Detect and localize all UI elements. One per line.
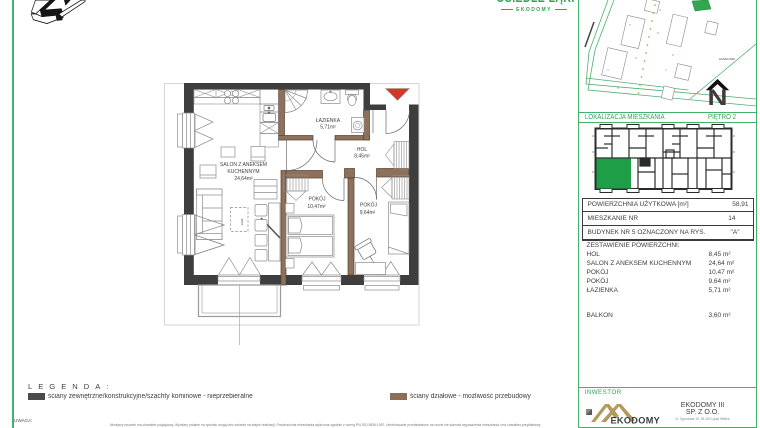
svg-text:HOL: HOL	[357, 147, 368, 153]
svg-text:5,71m²: 5,71m²	[320, 125, 336, 131]
svg-text:9,64m²: 9,64m²	[360, 210, 376, 216]
svg-text:10,47m²: 10,47m²	[307, 204, 326, 210]
svg-text:ŁAZIENKA: ŁAZIENKA	[316, 118, 341, 124]
svg-text:HANDLOWA: HANDLOWA	[719, 57, 735, 61]
svg-text:stolik: stolik	[240, 218, 244, 225]
svg-text:24,64m²: 24,64m²	[234, 176, 253, 182]
svg-text:POKÓJ: POKÓJ	[360, 202, 377, 209]
svg-text:KUCHENNYM: KUCHENNYM	[227, 169, 259, 175]
svg-text:EKODOMY: EKODOMY	[611, 416, 661, 426]
svg-text:SALON Z ANEKSEM: SALON Z ANEKSEM	[220, 162, 267, 168]
svg-text:N: N	[708, 85, 728, 110]
svg-text:POKÓJ: POKÓJ	[309, 196, 326, 203]
svg-text:8,45m²: 8,45m²	[354, 154, 370, 160]
